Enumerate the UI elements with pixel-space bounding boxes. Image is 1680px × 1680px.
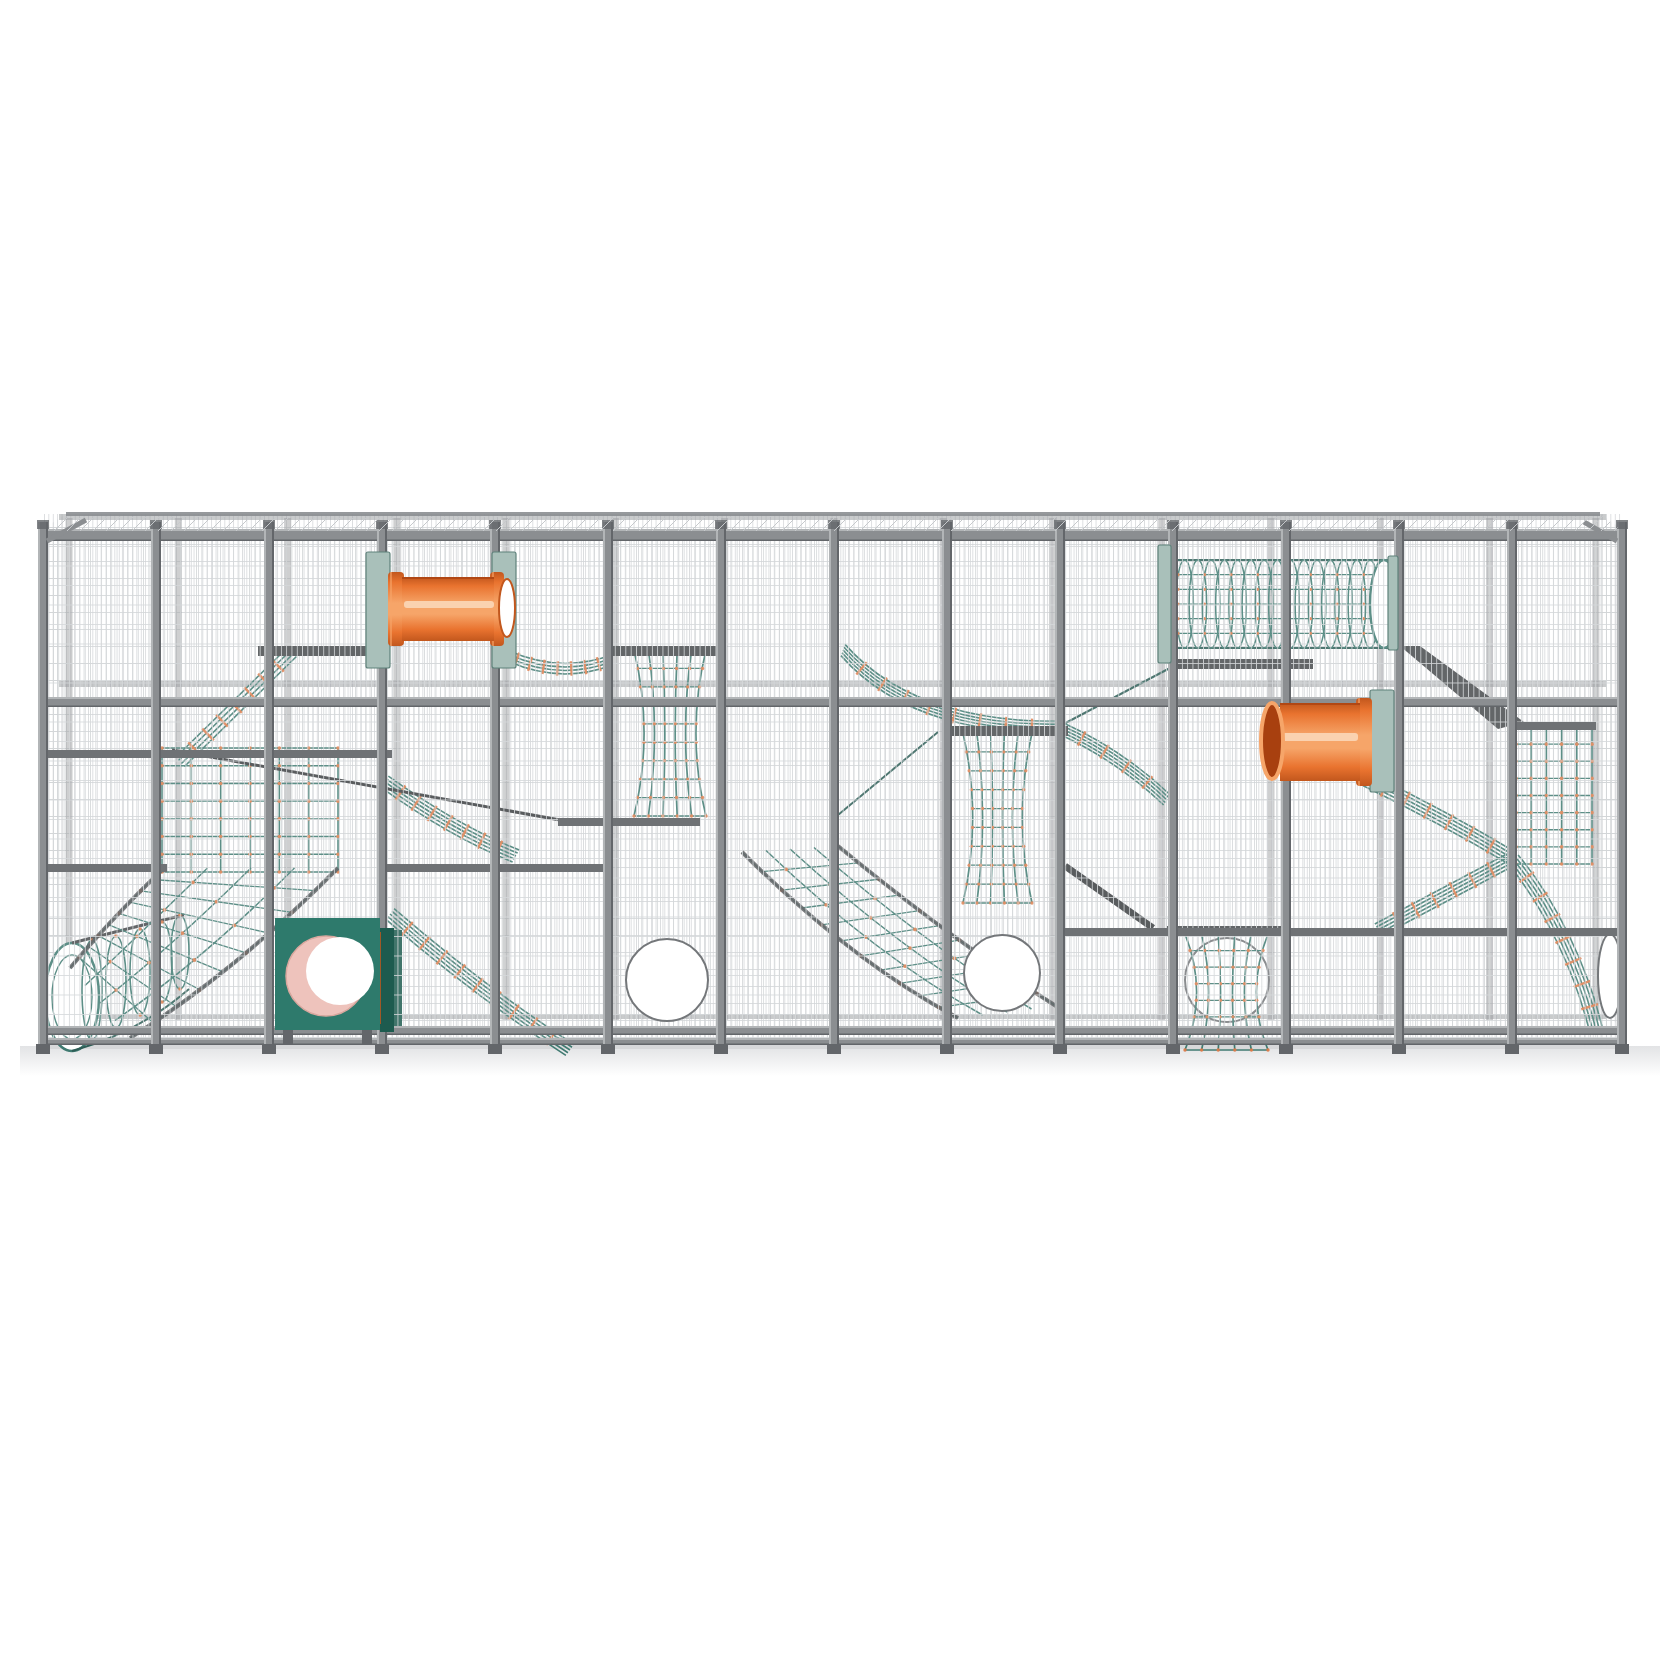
frame-post-shadow (611, 522, 613, 1045)
tube-opening (499, 579, 515, 637)
frame-post-shadow (724, 522, 726, 1045)
tube-body (402, 577, 494, 641)
tube-top-edge (1280, 703, 1360, 705)
frame-post-foot (940, 1044, 954, 1054)
frame-post-highlight (151, 522, 153, 1045)
frame-post-foot (1166, 1044, 1180, 1054)
panel-foot (362, 1030, 372, 1044)
roof-mesh (43, 514, 1622, 531)
tube-mount-plate (1158, 545, 1171, 663)
tube-specular-stripe (1282, 733, 1358, 741)
frame-rail-partial (43, 750, 392, 758)
frame-rail-partial (1512, 722, 1596, 730)
tube-top-edge (402, 577, 494, 579)
net-clamp (1200, 1048, 1203, 1051)
frame-post-highlight (38, 522, 40, 1045)
frame-post-shadow (950, 522, 952, 1045)
frame-post-foot (1279, 1044, 1293, 1054)
frame-post-foot (1615, 1044, 1629, 1054)
frame-post-highlight (603, 522, 605, 1045)
frame-post-shadow (46, 522, 48, 1045)
net-clamp (1183, 1048, 1186, 1051)
tube-opening (1261, 703, 1283, 779)
tube-mount-plate (366, 552, 390, 668)
panel-side (380, 928, 394, 1032)
tube-specular-stripe (404, 601, 494, 608)
frame-post-foot (1392, 1044, 1406, 1054)
net-clamp (1233, 1048, 1236, 1051)
frame-post-highlight (716, 522, 718, 1045)
frame-post-highlight (1281, 522, 1283, 1045)
tube-mount-plate (1370, 690, 1394, 792)
mesh-porthole (964, 935, 1040, 1011)
frame-post-foot (827, 1044, 841, 1054)
frame-post-foot (149, 1044, 163, 1054)
frame-post-cap (1616, 520, 1628, 529)
frame-post-foot (488, 1044, 502, 1054)
frame-post-highlight (942, 522, 944, 1045)
tube-mount-plate (1388, 556, 1398, 650)
orange-crawl-tube (1261, 698, 1372, 786)
panel-porthole-opening (306, 937, 374, 1005)
roof-back-rail (66, 512, 1600, 516)
frame-post-shadow (1289, 522, 1291, 1045)
frame-post-shadow (159, 522, 161, 1045)
frame-post-foot (262, 1044, 276, 1054)
frame-post-foot (714, 1044, 728, 1054)
frame-post-shadow (1515, 522, 1517, 1045)
frame-rail-partial (43, 864, 167, 872)
frame-post-foot (601, 1044, 615, 1054)
frame-post-shadow (837, 522, 839, 1045)
frame-post-shadow (1176, 522, 1178, 1045)
frame-post-foot (1505, 1044, 1519, 1054)
frame-rail-partial (558, 818, 700, 826)
frame-post-shadow (1402, 522, 1404, 1045)
net-clamp (1266, 1048, 1269, 1051)
frame-post-shadow (272, 522, 274, 1045)
frame-post-highlight (1507, 522, 1509, 1045)
frame-post-foot (375, 1044, 389, 1054)
tube-body (1280, 703, 1360, 781)
frame-post-foot (36, 1044, 50, 1054)
frame-post-shadow (1625, 522, 1627, 1045)
orange-crawl-tube (388, 572, 515, 646)
playground-cage-scene (0, 0, 1680, 1680)
frame-rail-partial (1056, 928, 1622, 936)
frame-post-highlight (829, 522, 831, 1045)
roof-panel (43, 512, 1622, 531)
frame-post-highlight (1617, 522, 1619, 1045)
playground-cage-render (0, 0, 1680, 1680)
net-clamp (1217, 1048, 1220, 1051)
frame-post-shadow (1063, 522, 1065, 1045)
tube-flange-ridge (390, 572, 392, 646)
frame-post-cap (37, 520, 49, 529)
mesh-porthole (626, 939, 708, 1021)
frame-post-highlight (264, 522, 266, 1045)
frame-post-foot (1053, 1044, 1067, 1054)
teal-panel-box (275, 918, 394, 1044)
panel-foot (283, 1030, 293, 1044)
net-clamp (1250, 1048, 1253, 1051)
frame-post-highlight (1055, 522, 1057, 1045)
